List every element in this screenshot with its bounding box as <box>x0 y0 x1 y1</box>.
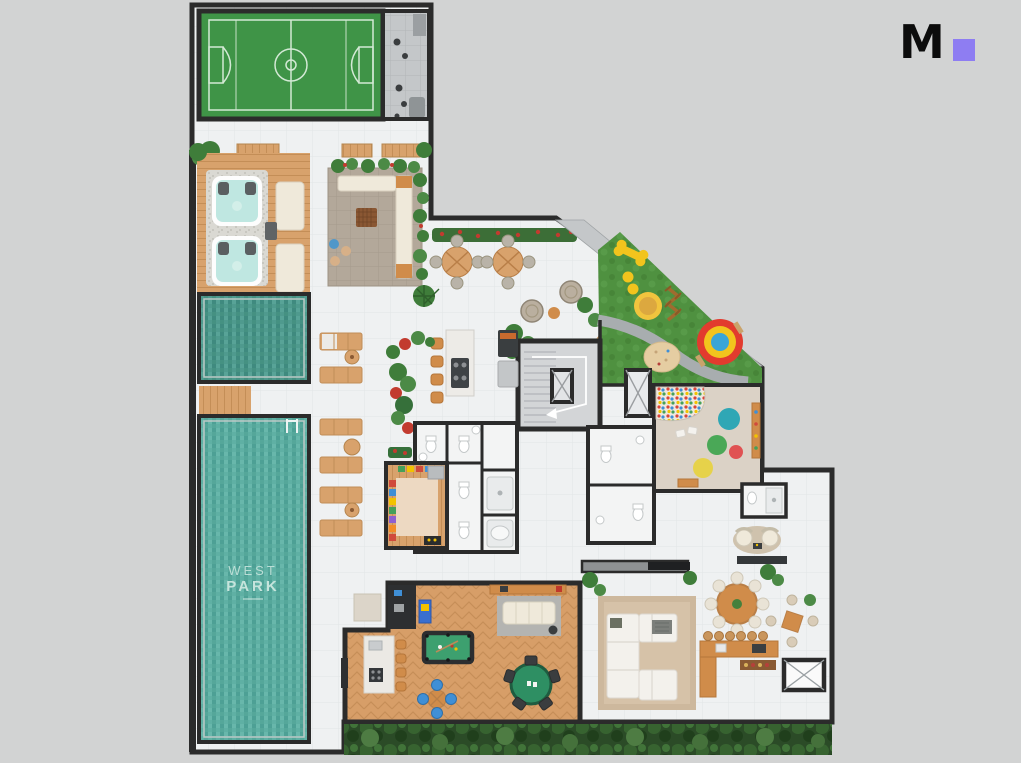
floor-plan: WEST PARK <box>0 0 1021 763</box>
play-mat <box>707 435 727 455</box>
play-mat <box>718 408 740 430</box>
stool <box>341 246 351 256</box>
stool <box>330 256 340 266</box>
deck-lounger <box>276 244 304 292</box>
lounge-sofa <box>338 176 396 191</box>
floor-plan-page: WEST PARK <box>0 0 1021 763</box>
corner-plant <box>189 143 207 161</box>
left-boundary-wall <box>189 150 196 752</box>
hot-tub <box>212 236 262 286</box>
bar-stool <box>431 356 443 367</box>
plunge-pool <box>199 294 309 382</box>
hanging-egg-chair <box>521 300 543 322</box>
restrooms-east <box>588 427 654 543</box>
bar-stool <box>396 668 406 677</box>
pergola-lounge <box>328 158 439 307</box>
brand-accent-square <box>953 39 975 61</box>
kids-playroom <box>654 385 762 491</box>
service-elevator <box>784 660 824 690</box>
lounge-corner <box>497 596 561 636</box>
brand-letter: M <box>899 24 942 62</box>
play-mat <box>693 458 713 478</box>
brand-logo: M <box>899 24 975 62</box>
bar-stool <box>431 374 443 385</box>
bar-stool <box>396 682 406 691</box>
armchair <box>762 529 778 546</box>
equipment-area <box>383 11 429 119</box>
game-room <box>341 583 580 722</box>
lounge-bathroom <box>742 484 786 517</box>
bar-stool <box>396 640 406 649</box>
hot-tub <box>212 176 262 226</box>
lounge-sofa <box>396 176 412 278</box>
tv-panel <box>648 562 690 570</box>
stair-core <box>518 341 600 429</box>
bar-stool <box>396 654 406 663</box>
playground <box>598 232 762 385</box>
elevator <box>626 370 650 416</box>
sports-court <box>199 11 383 119</box>
play-mat <box>729 445 743 459</box>
mini-market <box>386 447 447 548</box>
pool-deck-strip <box>199 386 251 414</box>
stool <box>329 239 339 249</box>
wine-rack <box>740 660 776 670</box>
pool-label-park: PARK <box>226 578 279 595</box>
spa-deck <box>197 153 310 292</box>
arcade-machine <box>419 600 431 623</box>
fire-pit-table <box>356 208 377 227</box>
hanging-egg-chair <box>560 281 582 303</box>
market-counter <box>424 536 441 545</box>
sandbox <box>644 342 680 372</box>
side-table <box>548 307 560 319</box>
party-dining-table <box>705 572 769 636</box>
hedge <box>344 724 832 755</box>
elevator <box>552 370 572 402</box>
pool-label-west: WEST <box>228 563 278 578</box>
armchair <box>736 529 752 546</box>
deck-lounger <box>276 182 304 230</box>
bar-stool <box>431 392 443 403</box>
pool-table <box>424 633 472 662</box>
sand-circle <box>634 292 662 320</box>
lap-pool: WEST PARK <box>199 416 309 742</box>
